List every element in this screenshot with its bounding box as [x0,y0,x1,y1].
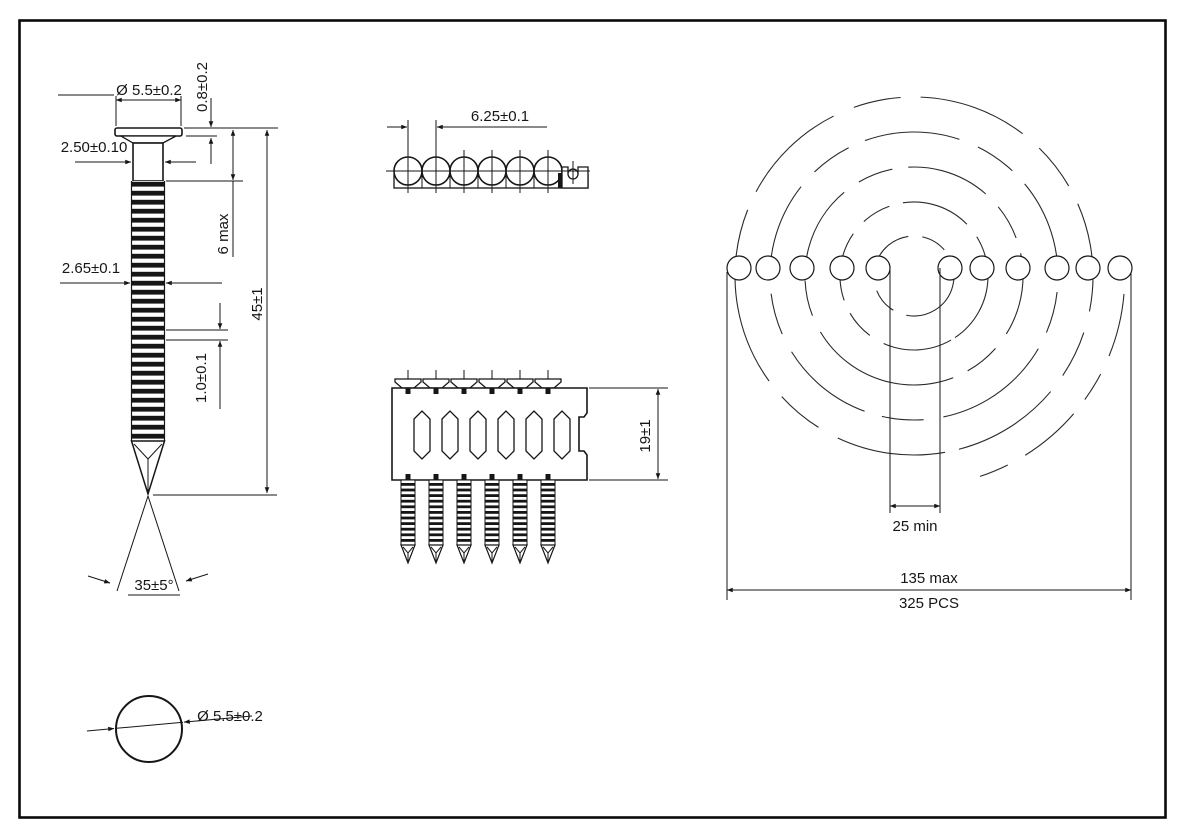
dim-overall-length: 45±1 [249,287,266,320]
strip-top-view: 6.25±0.1 [386,108,590,193]
dim-head-diameter-top-view: Ø 5.5±0.2 [197,708,263,725]
dim-coil-outer: 135 max [900,570,958,587]
coil-view: 25 min 135 max 325 PCS [707,69,1132,612]
drawing-border [20,21,1166,818]
dim-ring-pitch: 1.0±0.1 [193,353,210,403]
dim-head-diameter: Ø 5.5±0.2 [116,82,182,99]
dim-piece-count: 325 PCS [899,595,959,612]
dim-nail-spacing: 6.25±0.1 [471,108,529,125]
nail-head-fillet [121,136,176,143]
nail-side-view-dimensions: Ø 5.5±0.2 0.8±0.2 2.50±0.10 6 max 45±1 2… [58,62,278,595]
nail-head [115,128,182,136]
nail-side-view [115,128,182,494]
nail-smooth-shank [133,143,163,181]
dim-point-angle: 35±5° [134,577,173,594]
dim-head-thickness: 0.8±0.2 [194,62,211,112]
strip-nail-shanks [401,480,555,563]
dim-coil-inner: 25 min [892,518,937,535]
coil-nail-technical-drawing: Ø 5.5±0.2 0.8±0.2 2.50±0.10 6 max 45±1 2… [0,0,1185,836]
nail-ring-shank [132,181,165,441]
coil-nail-heads [727,256,1132,280]
head-top-view: Ø 5.5±0.2 [87,696,263,762]
strip-nail-heads [395,370,561,388]
head-circle [116,696,182,762]
drawing-sheet: Ø 5.5±0.2 0.8±0.2 2.50±0.10 6 max 45±1 2… [0,0,1185,836]
dim-smooth-length: 6 max [215,213,232,254]
dim-collation-height: 19±1 [637,419,654,452]
strip-side-view: 19±1 [392,370,668,563]
dim-ring-diameter: 2.65±0.1 [62,260,120,277]
dim-shank-under-head: 2.50±0.10 [61,139,128,156]
